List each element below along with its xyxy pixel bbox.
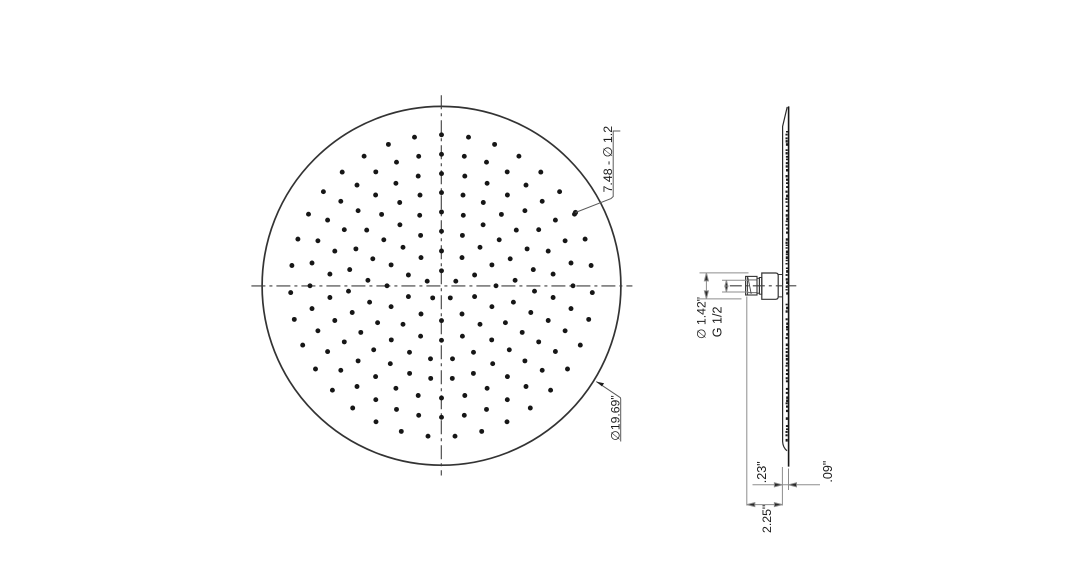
svg-text:2.25": 2.25" [760,505,774,533]
svg-text:.09": .09" [821,461,835,483]
svg-text:7.48 - ∅ 1.2: 7.48 - ∅ 1.2 [601,126,615,193]
svg-text:G 1/2: G 1/2 [711,306,725,337]
svg-text:.23": .23" [755,461,769,483]
svg-text:∅19.69": ∅19.69" [608,395,622,440]
svg-text:∅ 1.42": ∅ 1.42" [695,297,709,339]
